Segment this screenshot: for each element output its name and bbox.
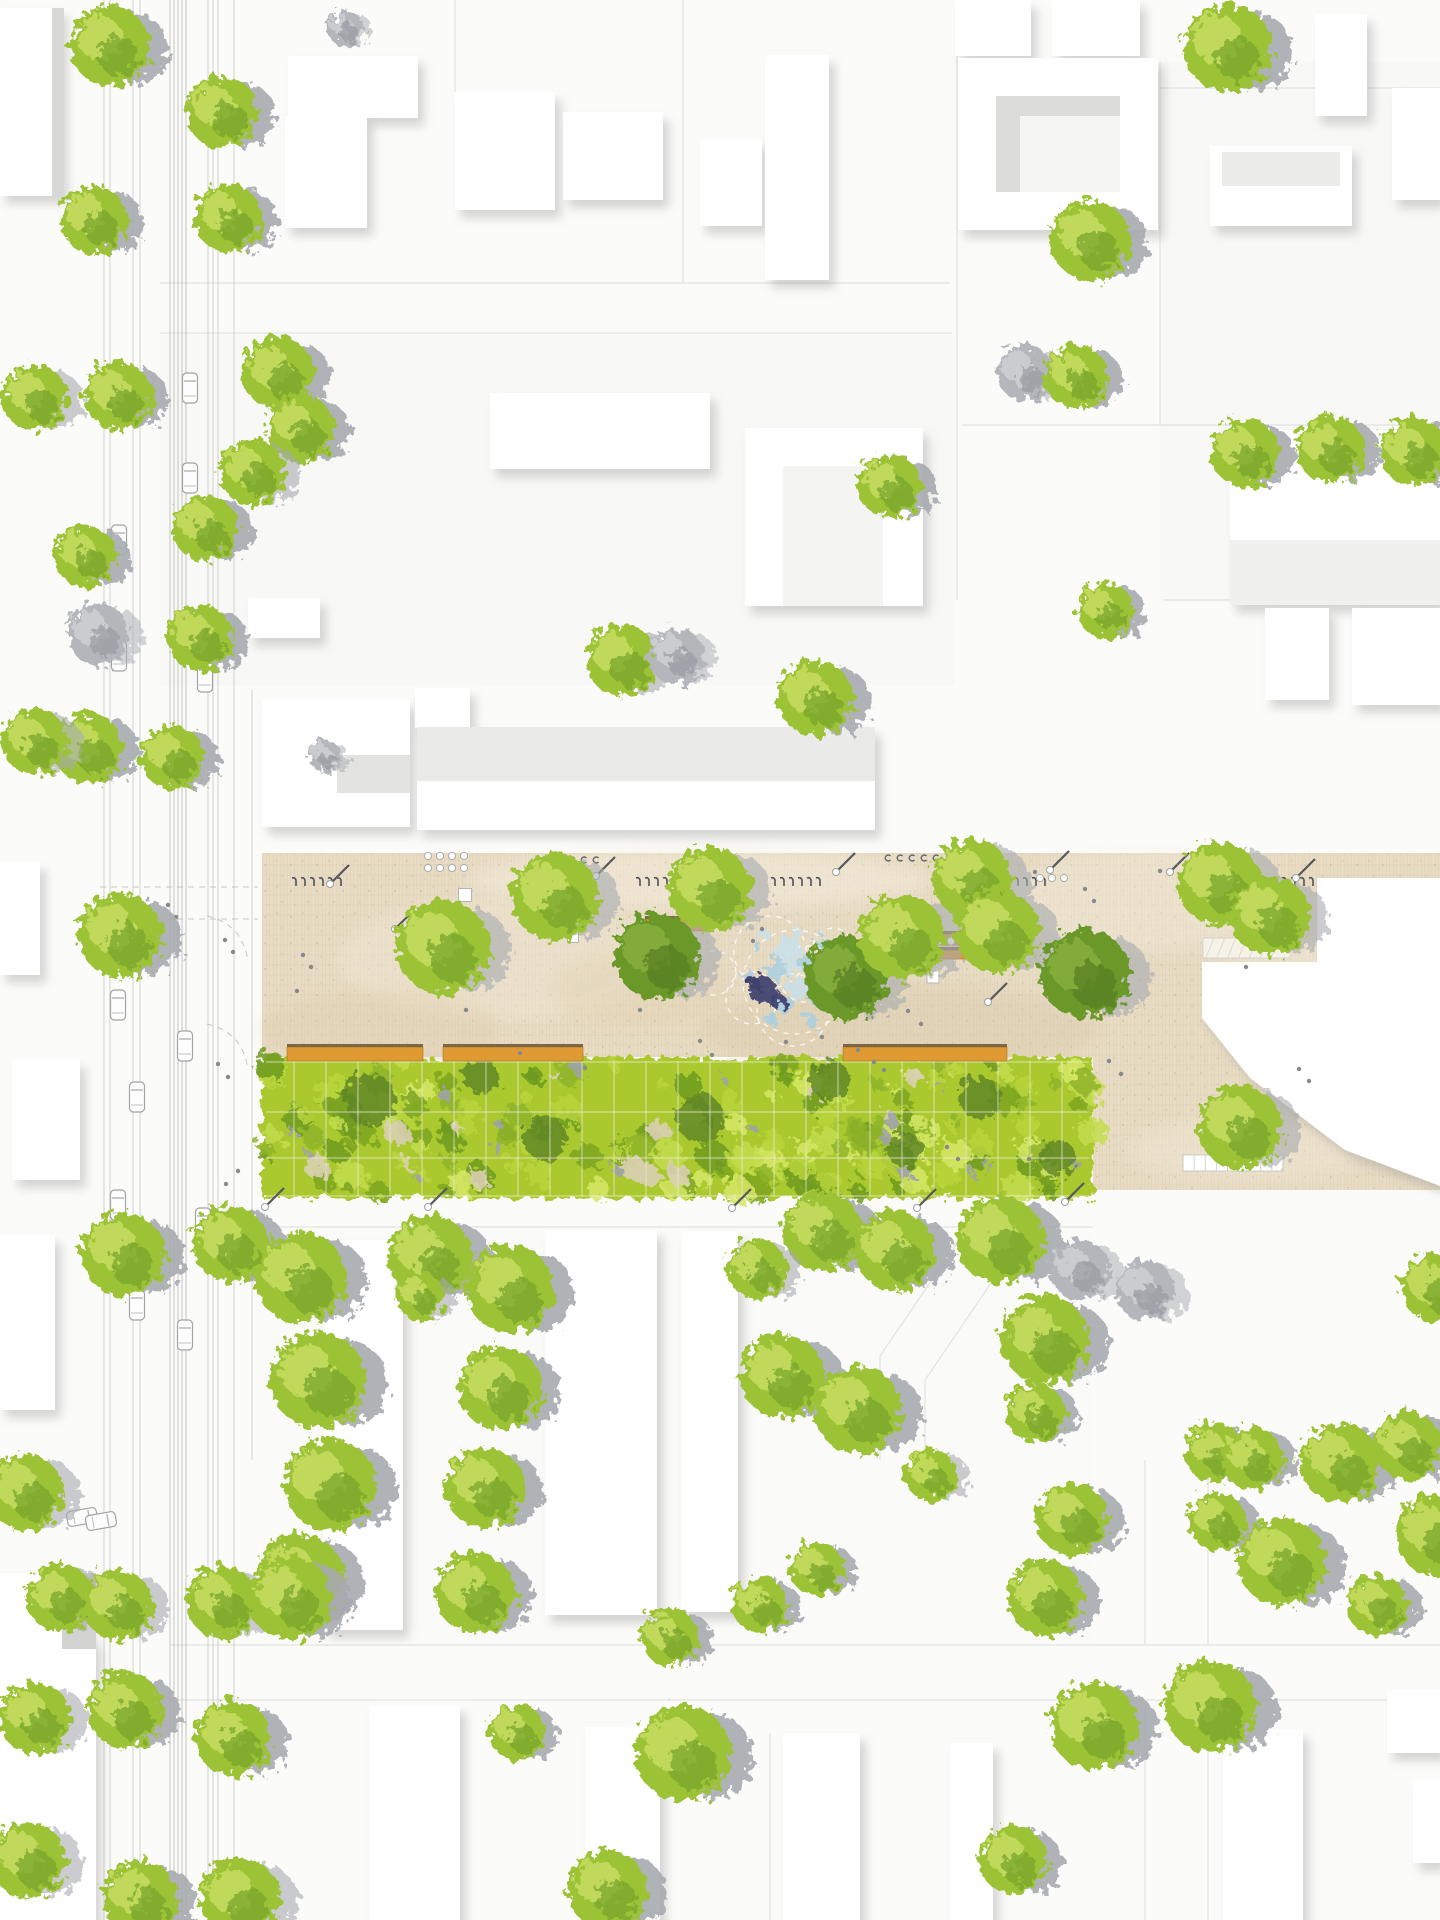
meadow-blob — [998, 1065, 1014, 1081]
person-dot — [1107, 1059, 1111, 1063]
meadow-gap — [904, 1067, 921, 1084]
tree-canopy-shade — [26, 734, 59, 767]
cafe-chair — [1036, 874, 1043, 881]
tree-canopy-shade — [413, 1290, 437, 1314]
tree-canopy-shade — [163, 749, 195, 781]
light-pole-head — [914, 1205, 921, 1212]
light-pole-head — [1167, 869, 1174, 876]
site-plan-stage — [0, 0, 1440, 1920]
water-splash — [764, 1012, 778, 1026]
tree-canopy-shade — [543, 886, 587, 930]
car — [178, 1320, 193, 1350]
tree-canopy-shade — [668, 649, 696, 677]
tree-canopy-shade — [770, 1366, 812, 1408]
meadow-blob — [772, 1164, 784, 1176]
tree-canopy-shade — [1243, 1451, 1274, 1482]
fountain-sculpture — [769, 992, 785, 1008]
meadow-blob — [263, 1127, 284, 1148]
meadow-blob — [1048, 1077, 1060, 1089]
cafe-chair — [460, 852, 467, 859]
tree-canopy-shade — [1216, 37, 1260, 81]
tree-canopy-shade — [1003, 1852, 1037, 1886]
tree-canopy-shade — [1079, 230, 1119, 270]
person-dot — [919, 1022, 923, 1026]
car — [183, 373, 198, 403]
meadow-blob — [815, 1105, 836, 1126]
person-dot — [1027, 1157, 1031, 1161]
person-dot — [1119, 1072, 1123, 1076]
person-dot — [309, 965, 313, 969]
meadow-blob — [947, 1061, 961, 1075]
person-dot — [751, 939, 755, 943]
meadow-blob — [609, 1147, 624, 1162]
tree-canopy-shade — [196, 520, 229, 553]
person-dot — [956, 1157, 960, 1161]
tree-canopy-shade — [26, 390, 59, 423]
meadow-shrub — [676, 1094, 724, 1142]
cafe-chair — [448, 852, 455, 859]
tree-canopy-shade — [645, 946, 688, 989]
tree-canopy-shade — [812, 1222, 852, 1262]
person-dot — [1307, 1079, 1311, 1083]
meadow-blob — [505, 1157, 522, 1174]
meadow-blob — [733, 1143, 762, 1172]
tree-canopy-shade — [1067, 369, 1099, 401]
tree-canopy-shade — [212, 103, 248, 139]
person-dot — [820, 1035, 824, 1039]
tree-canopy-shade — [597, 1880, 637, 1920]
tree-canopy-shade — [430, 936, 477, 983]
plaza-kiosk — [459, 889, 472, 902]
meadow-blob — [554, 1096, 581, 1123]
meadow-blob — [767, 1089, 778, 1100]
building — [1223, 1730, 1303, 1920]
bench-back-edge — [843, 1044, 1007, 1047]
building — [248, 598, 320, 638]
tree-canopy-shade — [509, 1725, 537, 1753]
building-roof-shade — [337, 755, 410, 793]
tree-canopy-shade — [1137, 1283, 1167, 1313]
meadow-blob — [333, 1075, 349, 1091]
meadow-blob — [302, 1126, 325, 1149]
building — [285, 116, 367, 228]
tree-canopy-shade — [1228, 1117, 1270, 1159]
light-pole-head — [985, 999, 992, 1006]
person-dot — [698, 1039, 702, 1043]
tree-canopy-shade — [76, 549, 107, 580]
tree-canopy-shade — [924, 1469, 950, 1495]
tree-canopy-shade — [884, 1241, 924, 1281]
meadow-blob — [858, 1152, 885, 1179]
fountain-sculpture — [749, 977, 761, 989]
meadow-rock — [439, 1088, 452, 1101]
tree-canopy-shade — [317, 1474, 363, 1520]
meadow-gap — [665, 1129, 675, 1139]
tree-canopy-shade — [498, 1278, 542, 1322]
building — [783, 1733, 860, 1920]
tree-canopy-shade — [698, 879, 740, 921]
tree-canopy-shade — [1270, 1551, 1314, 1595]
meadow-gap — [550, 1070, 561, 1081]
tree-canopy-shade — [321, 752, 337, 768]
bench — [287, 1047, 423, 1061]
tree-canopy-shade — [804, 689, 842, 727]
water-splash — [784, 960, 800, 976]
tree-canopy-shade — [1404, 444, 1438, 478]
light-pole-head — [833, 869, 840, 876]
meadow-shrub — [810, 1060, 850, 1100]
car — [178, 1031, 193, 1061]
meadow-blob — [520, 1091, 531, 1102]
meadow — [254, 1051, 1108, 1205]
person-dot — [882, 1068, 886, 1072]
building — [563, 112, 663, 200]
cafe-chair — [424, 852, 431, 859]
tree-canopy-shade — [340, 24, 358, 42]
light-pole-head — [729, 1205, 736, 1212]
person-dot — [1083, 887, 1087, 891]
tree-canopy-shade — [84, 212, 118, 246]
building — [1387, 1690, 1440, 1753]
tree-canopy-shade — [1368, 1598, 1399, 1629]
meadow-rock — [492, 1142, 503, 1153]
meadow-blob — [952, 1117, 963, 1128]
light-pole-head — [262, 1204, 269, 1211]
person-dot — [1158, 869, 1162, 873]
meadow-blob — [1070, 1097, 1086, 1113]
meadow-rock — [889, 1112, 896, 1119]
person-dot — [216, 1062, 220, 1066]
tree-canopy-shade — [50, 1590, 84, 1624]
meadow-blob — [968, 1133, 993, 1158]
meadow-blob — [909, 1113, 926, 1130]
tree-canopy-shade — [1097, 603, 1125, 631]
meadow-blob — [694, 1172, 710, 1188]
building — [1392, 88, 1440, 200]
tree-canopy-shade — [243, 464, 276, 497]
tree-canopy-shade — [222, 1729, 260, 1767]
person-dot — [945, 1145, 949, 1149]
tree-canopy-shade — [108, 388, 142, 422]
bench-back-edge — [443, 1044, 583, 1047]
tree-canopy-shade — [988, 1229, 1032, 1273]
meadow-rock — [984, 1162, 992, 1170]
tree-canopy-shade — [218, 210, 252, 244]
tree-canopy-shade — [662, 1630, 691, 1659]
meadow-blob — [332, 1117, 346, 1131]
cafe-chair — [448, 864, 455, 871]
cafe-chair — [424, 864, 431, 871]
tree-canopy-shade — [890, 927, 933, 970]
tree-canopy-shade — [212, 1593, 248, 1629]
person-dot — [710, 1053, 714, 1057]
tree-canopy-shade — [191, 630, 224, 663]
building — [1413, 1780, 1440, 1863]
tree-canopy-shade — [474, 1478, 514, 1518]
tree-canopy-shade — [25, 1709, 61, 1745]
meadow-blob — [696, 1140, 728, 1172]
meadow-blob — [526, 1068, 543, 1085]
person-dot — [301, 953, 305, 957]
tree-canopy-shade — [1197, 1695, 1243, 1741]
person-dot — [1297, 1067, 1301, 1071]
tree-canopy-shade — [846, 1399, 890, 1443]
tree-canopy-shade — [752, 1598, 780, 1626]
building — [490, 393, 710, 469]
building — [415, 688, 470, 728]
water-splash — [805, 1015, 817, 1027]
person-dot — [1092, 899, 1096, 903]
cafe-chair — [436, 864, 443, 871]
meadow-blob — [416, 1080, 435, 1099]
tree-canopy-shade — [1072, 963, 1117, 1008]
bench — [443, 1047, 583, 1061]
building — [0, 1235, 55, 1410]
car — [130, 1082, 145, 1112]
person-dot — [518, 1051, 522, 1055]
tree-canopy-shade — [99, 36, 139, 76]
tree-canopy-shade — [111, 1244, 153, 1286]
tree-canopy-shade — [108, 1597, 143, 1632]
building — [0, 862, 40, 975]
meadow-shrub — [958, 1076, 1002, 1120]
building — [12, 1060, 80, 1180]
tree-canopy-shade — [1017, 366, 1045, 394]
building — [1315, 14, 1367, 116]
tree-canopy-shade — [89, 627, 120, 658]
meadow-shrub — [344, 1074, 396, 1126]
building-roof-shade — [417, 727, 875, 781]
person-dot — [224, 1182, 228, 1186]
meadow-blob — [1077, 1117, 1108, 1148]
tree-canopy-shade — [1320, 441, 1354, 475]
building — [700, 140, 762, 226]
person-dot — [760, 927, 764, 931]
meadow-blob — [760, 1131, 783, 1154]
meadow-blob — [725, 1113, 747, 1135]
tree-canopy-shade — [1072, 1263, 1102, 1293]
tree-canopy-shade — [14, 1483, 52, 1521]
meadow-rock — [899, 1168, 911, 1180]
meadow-rock — [493, 1119, 503, 1129]
meadow-blob — [574, 1142, 601, 1169]
tree-canopy-shade — [1209, 1514, 1238, 1543]
person-dot — [856, 1048, 860, 1052]
meadow-blob — [1015, 1077, 1034, 1096]
person-dot — [231, 950, 235, 954]
tree-canopy-shade — [881, 478, 913, 510]
meadow-grid — [266, 1061, 1089, 1196]
meadow-rock — [722, 1077, 729, 1084]
person-dot — [166, 903, 170, 907]
tree-canopy-shade — [78, 740, 113, 775]
meadow-shrub — [887, 1132, 923, 1168]
building — [1352, 608, 1440, 705]
tree-canopy-shade — [834, 967, 876, 1009]
meadow-gap — [636, 1163, 660, 1187]
meadow-blob — [1073, 1070, 1097, 1094]
person-dot — [872, 1060, 876, 1064]
meadow-rock — [287, 1128, 296, 1137]
tree-canopy-shade — [985, 921, 1027, 963]
building-roof-shade — [1230, 540, 1440, 605]
tree-canopy-shade — [1033, 1329, 1077, 1373]
tree-canopy-shade — [1027, 1406, 1057, 1436]
meadow-blob — [449, 1171, 475, 1197]
building — [1317, 878, 1440, 964]
building — [765, 55, 829, 280]
meadow-gap — [385, 1121, 409, 1145]
person-dot — [784, 1040, 788, 1044]
meadow-blob — [988, 1062, 999, 1073]
tree-canopy-shade — [464, 1583, 504, 1623]
meadow-rock — [307, 1152, 315, 1160]
site-plan-svg — [0, 0, 1440, 1920]
cafe-chair — [460, 864, 467, 871]
person-dot — [638, 1008, 642, 1012]
meadow-blob — [410, 1124, 431, 1145]
water-splash — [741, 968, 753, 980]
tree-canopy-shade — [670, 1741, 718, 1789]
tree-canopy-shade — [219, 1235, 257, 1273]
person-dot — [906, 1009, 910, 1013]
tree-canopy-shade — [1062, 1510, 1098, 1546]
tree-canopy-shade — [1235, 445, 1269, 479]
cafe-chair — [1048, 874, 1055, 881]
building — [1052, 0, 1140, 56]
tree-canopy-shade — [612, 651, 648, 687]
person-dot — [226, 1075, 230, 1079]
meadow-blob — [342, 1139, 355, 1152]
tree-canopy-shade — [287, 1266, 333, 1312]
tree-canopy-shade — [1398, 1438, 1432, 1472]
meadow-rock — [748, 1124, 756, 1132]
tree-canopy-shade — [305, 1368, 353, 1416]
building — [950, 1743, 993, 1920]
car — [183, 463, 198, 493]
person-dot — [583, 1066, 587, 1070]
tree-canopy-shade — [108, 925, 150, 967]
tree-canopy-shade — [17, 1851, 55, 1889]
meadow-blob — [834, 1141, 850, 1157]
meadow-blob — [1016, 1114, 1039, 1137]
tree-canopy-shade — [1034, 1589, 1072, 1627]
meadow-rock — [887, 1118, 899, 1130]
meadow-blob — [525, 1161, 553, 1189]
light-pole-head — [327, 881, 334, 888]
meadow-gap — [470, 1169, 489, 1188]
tree-canopy-shade — [488, 1378, 530, 1420]
meadow-blob — [341, 1183, 352, 1194]
meadow-blob — [942, 1140, 971, 1169]
bench — [843, 1047, 1007, 1061]
cafe-chair — [1060, 874, 1067, 881]
person-dot — [223, 938, 227, 942]
tree-canopy-shade — [290, 420, 324, 454]
light-pole-head — [392, 926, 399, 933]
meadow-rock — [413, 1174, 422, 1183]
meadow-blob — [719, 1090, 741, 1112]
person-dot — [464, 1008, 468, 1012]
car — [111, 990, 126, 1020]
person-dot — [1033, 870, 1037, 874]
meadow-blob — [870, 1077, 885, 1092]
light-pole-head — [425, 1204, 432, 1211]
meadow-rock — [935, 1081, 942, 1088]
meadow-blob — [841, 1116, 866, 1141]
building-roof-shade — [1222, 152, 1340, 186]
building — [288, 56, 418, 118]
meadow-blob — [773, 1063, 792, 1082]
water-splash — [793, 928, 805, 940]
meadow-shrub — [523, 1116, 567, 1160]
light-pole-head — [1047, 867, 1054, 874]
tree-canopy-shade — [114, 1701, 152, 1739]
water-splash — [752, 942, 762, 952]
building — [1265, 608, 1329, 700]
tree — [1374, 1412, 1440, 1480]
bench-back-edge — [287, 1044, 423, 1047]
cafe-chair — [436, 852, 443, 859]
person-dot — [295, 989, 299, 993]
building — [955, 0, 1031, 56]
person-dot — [1244, 965, 1248, 969]
building-roof-shade — [996, 96, 1020, 192]
tree-canopy-shade — [1259, 906, 1299, 946]
building — [681, 1231, 738, 1612]
light-pole-head — [1062, 1199, 1069, 1206]
building — [455, 92, 555, 210]
meadow-rock — [968, 1168, 977, 1177]
tree-canopy-shade — [1329, 1453, 1369, 1493]
building-roof-shade — [52, 8, 64, 196]
meadow-blob — [297, 1108, 311, 1122]
building — [370, 1705, 460, 1920]
meadow-blob — [657, 1080, 668, 1091]
tree-canopy-shade — [278, 1588, 320, 1630]
tree-canopy-shade — [749, 1262, 779, 1292]
person-dot — [236, 1169, 240, 1173]
light-pole-head — [1293, 875, 1300, 882]
tree-canopy-shade — [809, 1563, 836, 1590]
tree-canopy-shade — [1082, 1715, 1126, 1759]
